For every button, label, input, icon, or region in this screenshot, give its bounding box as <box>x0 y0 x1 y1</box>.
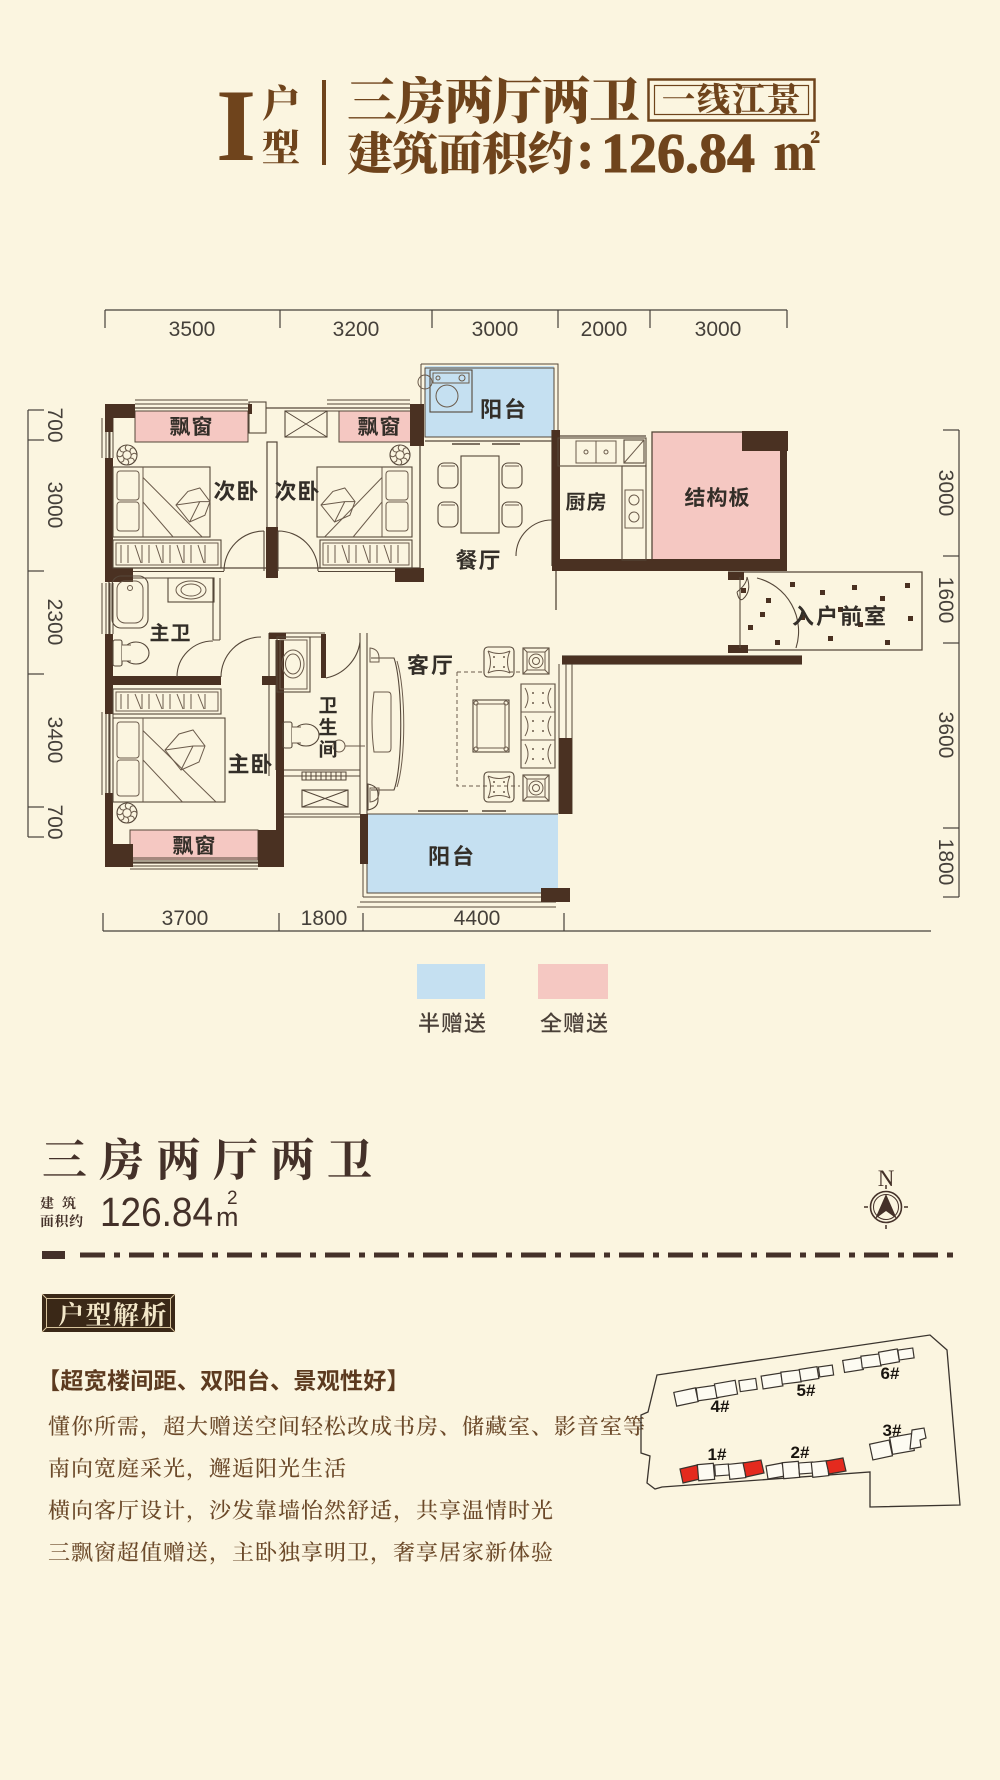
svg-text:3000: 3000 <box>695 318 742 341</box>
svg-text:3000: 3000 <box>472 318 519 341</box>
svg-text:1800: 1800 <box>301 907 348 930</box>
svg-text:2#: 2# <box>791 1443 810 1462</box>
svg-text:3500: 3500 <box>169 318 216 341</box>
svg-text:1800: 1800 <box>934 839 957 886</box>
svg-text:2000: 2000 <box>581 318 628 341</box>
svg-text:2300: 2300 <box>43 599 66 646</box>
svg-text:3700: 3700 <box>162 907 209 930</box>
svg-text:3000: 3000 <box>43 482 66 529</box>
svg-text:126.84: 126.84 <box>601 123 755 185</box>
svg-text:4400: 4400 <box>454 907 501 930</box>
svg-text:3000: 3000 <box>934 470 957 517</box>
svg-text:700: 700 <box>43 407 66 442</box>
svg-text:I: I <box>216 69 256 183</box>
svg-text:700: 700 <box>43 804 66 839</box>
svg-text:5#: 5# <box>797 1381 816 1400</box>
svg-text:6#: 6# <box>881 1364 900 1383</box>
svg-text:1#: 1# <box>708 1445 727 1464</box>
svg-text:1600: 1600 <box>934 577 957 624</box>
svg-text:126.84: 126.84 <box>100 1189 213 1235</box>
svg-text:3200: 3200 <box>333 318 380 341</box>
svg-text:3#: 3# <box>883 1421 902 1440</box>
svg-text:3400: 3400 <box>43 717 66 764</box>
svg-text:4#: 4# <box>711 1397 730 1416</box>
svg-text:2: 2 <box>227 1188 238 1209</box>
svg-text:3600: 3600 <box>934 712 957 759</box>
